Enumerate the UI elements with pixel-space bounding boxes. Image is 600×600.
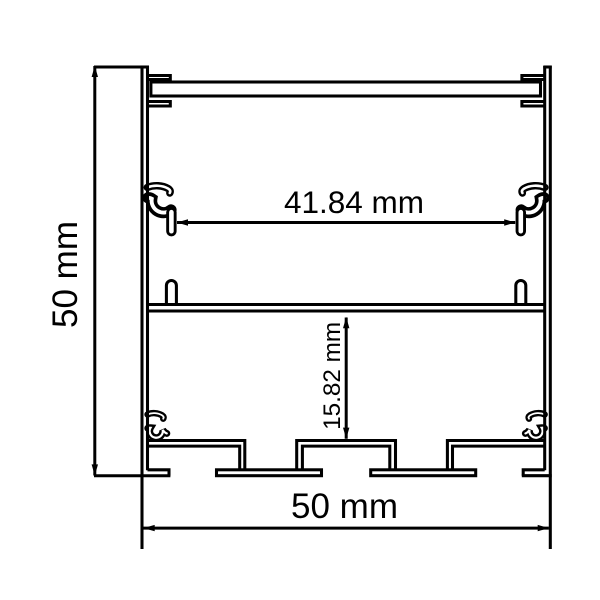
svg-text:50 mm: 50 mm [291,487,398,526]
svg-text:41.84 mm: 41.84 mm [284,184,424,220]
svg-text:15.82 mm: 15.82 mm [319,322,346,430]
svg-text:50 mm: 50 mm [46,221,85,328]
